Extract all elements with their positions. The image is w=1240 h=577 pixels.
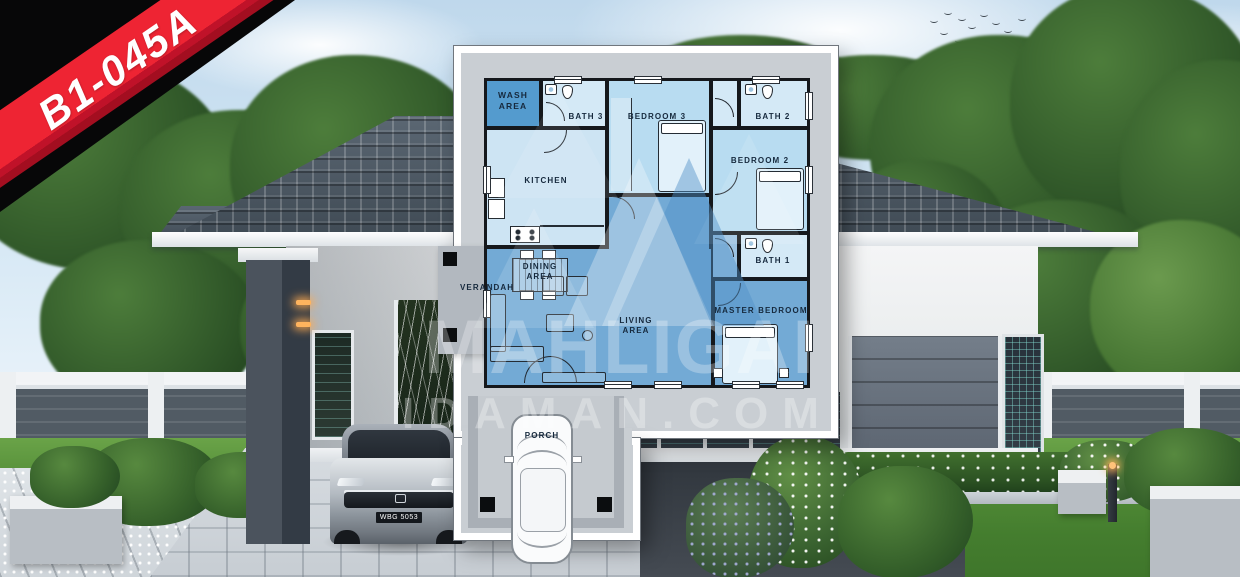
plan-window [752,76,780,84]
bird-icon [940,30,948,35]
room-label-kitchen: KITCHEN [524,176,567,186]
side-wall-panel [848,336,1002,452]
room-label-wash-area: WASH AREA [489,90,537,112]
lavender-bush [686,478,794,577]
room-label-bath-3: BATH 3 [569,112,604,122]
car-mirror [504,456,514,463]
plan-window [634,76,662,84]
bird-icon [1004,28,1012,33]
bird-icon [958,16,966,21]
car-mirror [572,456,582,463]
light-bollard [1108,464,1117,522]
plan-window [805,166,813,194]
watermark-line1: MAHLIGAI [424,310,816,386]
room-label-bedroom-3: BEDROOM 3 [628,112,686,122]
room-label-bath-2: BATH 2 [756,112,791,122]
kitchen-sink-unit [488,199,505,219]
bird-icon [968,24,976,29]
car-rear-window-line [517,532,567,548]
kitchen-counter-line [540,225,604,227]
plan-window [483,166,491,194]
bird-icon [992,20,1000,25]
bush [838,466,973,577]
car-roof-panel [520,468,566,532]
honda-logo-icon [395,494,406,503]
license-plate: WBG 5053 [376,512,422,523]
room-label-bedroom-2: BEDROOM 2 [731,156,789,166]
promo-image: WBG 5053 VERANDAH PORCH [0,0,1240,577]
wall-lamp [296,300,311,305]
verandah-column [443,252,457,266]
sink-icon [745,84,757,95]
bollard-light [1109,462,1116,469]
planter-box [1150,486,1240,577]
porch-column-plan [597,497,612,512]
bird-icon [1018,16,1026,21]
grille-window-left [312,330,354,440]
bird-icon [980,12,988,17]
room-label-dining-area: DINING AREA [516,262,564,283]
watermark-line2: IDAMAN.COM [402,392,833,436]
plan-window [805,92,813,120]
porch-column-plan [480,497,495,512]
bird-icon [930,18,938,23]
grille-window-right [1002,334,1044,458]
planter-cube [1058,470,1106,514]
bird-icon [944,10,952,15]
plan-window [554,76,582,84]
wall-lamp [296,322,311,327]
car-windshield-line [517,450,567,466]
room-label-bath-1: BATH 1 [756,256,791,266]
car-headlight [337,478,366,486]
room-label-verandah: VERANDAH [460,283,514,293]
